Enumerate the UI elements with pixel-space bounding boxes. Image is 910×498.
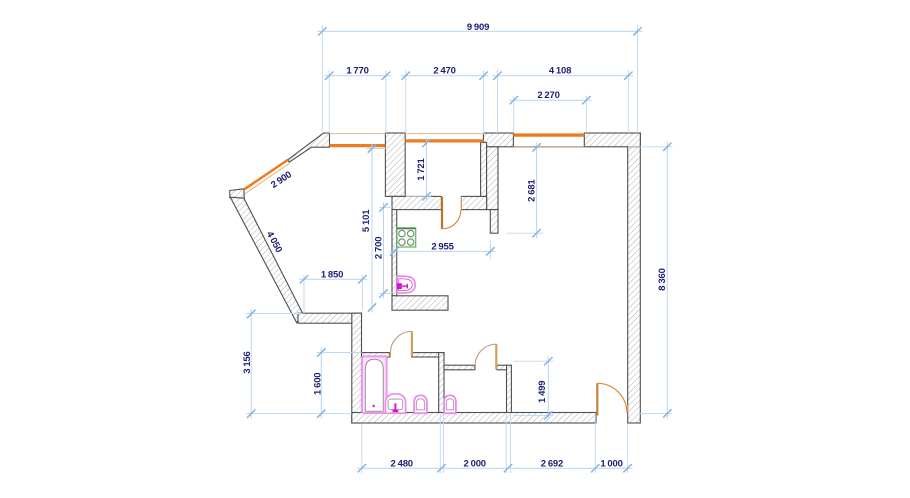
svg-text:2 681: 2 681 xyxy=(526,179,537,202)
svg-text:2 270: 2 270 xyxy=(537,90,559,101)
svg-text:3 156: 3 156 xyxy=(242,351,253,373)
svg-text:1 721: 1 721 xyxy=(416,157,427,180)
svg-text:1 600: 1 600 xyxy=(313,373,324,395)
svg-text:2 900: 2 900 xyxy=(269,169,294,191)
svg-text:2 700: 2 700 xyxy=(374,237,385,259)
svg-text:1 850: 1 850 xyxy=(321,269,343,280)
svg-text:1 000: 1 000 xyxy=(600,458,622,469)
svg-text:4 108: 4 108 xyxy=(549,66,571,77)
svg-text:2 480: 2 480 xyxy=(391,458,413,469)
svg-text:8 360: 8 360 xyxy=(657,268,668,290)
svg-text:1 499: 1 499 xyxy=(537,381,548,403)
svg-text:2 692: 2 692 xyxy=(541,458,563,469)
svg-text:2 955: 2 955 xyxy=(431,241,454,252)
svg-text:2 470: 2 470 xyxy=(433,66,455,77)
svg-text:5 101: 5 101 xyxy=(361,209,372,232)
svg-text:2 000: 2 000 xyxy=(464,458,486,469)
svg-text:1 770: 1 770 xyxy=(346,66,368,77)
svg-text:9 909: 9 909 xyxy=(467,22,489,33)
